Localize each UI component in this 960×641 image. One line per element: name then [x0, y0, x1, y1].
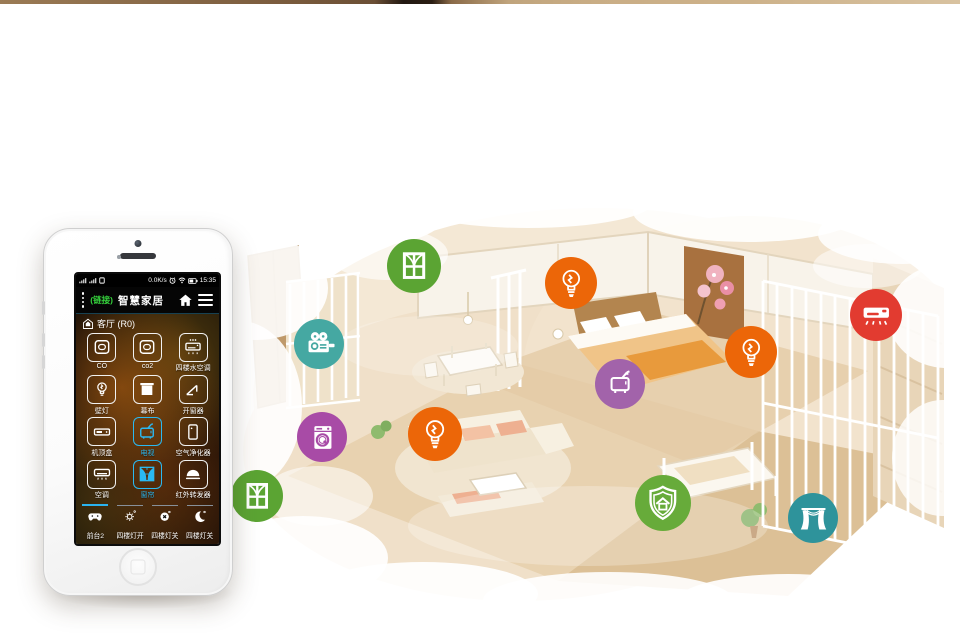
overlay-bulb-icon[interactable] [725, 326, 777, 378]
front-camera [135, 240, 142, 247]
dome-icon [179, 460, 208, 489]
device-label: 空气净化器 [176, 448, 211, 458]
alarm-icon [169, 277, 176, 284]
battery-icon [188, 278, 198, 284]
device-tile-sensor[interactable]: co2 [125, 333, 171, 374]
device-label: 空调 [95, 490, 109, 500]
moon-icon [192, 508, 208, 529]
overflow-menu-icon[interactable] [82, 292, 84, 307]
scene-button-sun[interactable]: 四楼灯开 [113, 505, 148, 540]
ac-icon [87, 460, 116, 489]
page: 0.0K/s 15:35 (链接) 智慧家居 客厅 (R0) COco [0, 0, 960, 641]
volume-down-button[interactable] [42, 355, 45, 369]
device-tile-ac[interactable]: 空调 [79, 460, 125, 501]
scene-label: 四楼灯关 [151, 530, 178, 540]
room-home-icon [82, 318, 94, 330]
bulb-icon [87, 375, 116, 404]
sim-icon [99, 277, 105, 284]
device-label: 四楼水空调 [176, 363, 211, 373]
overlay-shield-home-icon[interactable] [635, 475, 691, 531]
cropped-banner-strip [0, 0, 960, 4]
overlay-curtain-icon[interactable] [788, 493, 838, 543]
device-tile-sensor[interactable]: CO [79, 333, 125, 374]
sun-icon [122, 508, 138, 529]
smartphone: 0.0K/s 15:35 (链接) 智慧家居 客厅 (R0) COco [43, 228, 233, 596]
overlay-window-icon[interactable] [387, 239, 441, 293]
room-selector[interactable]: 客厅 (R0) [76, 314, 219, 331]
screen-icon [133, 375, 162, 404]
device-label: 机顶盒 [91, 448, 112, 458]
scene-label: 前台2 [87, 530, 104, 540]
sensor-icon [87, 333, 116, 362]
phone-screen: 0.0K/s 15:35 (链接) 智慧家居 客厅 (R0) COco [76, 274, 219, 544]
tv-icon [133, 417, 162, 446]
scene-indicator [152, 505, 178, 506]
device-label: 红外转发器 [176, 490, 211, 500]
settop-icon [87, 417, 116, 446]
clock-time: 15:35 [200, 277, 216, 284]
scene-button-gamepad[interactable]: 前台2 [78, 504, 113, 540]
home-button[interactable] [119, 548, 157, 586]
mute-switch[interactable] [42, 301, 45, 315]
wifi-icon [178, 277, 186, 284]
status-bar: 0.0K/s 15:35 [76, 274, 219, 287]
device-tile-dome[interactable]: 红外转发器 [170, 460, 216, 501]
app-header: (链接) 智慧家居 [76, 287, 219, 314]
x-circle-icon [157, 508, 173, 529]
device-label: 壁灯 [95, 406, 109, 416]
volume-up-button[interactable] [42, 333, 45, 347]
device-label: 窗帘 [140, 490, 154, 500]
device-tile-purifier[interactable]: 空气净化器 [170, 417, 216, 458]
scene-label: 四楼灯开 [117, 530, 144, 540]
connection-status: (链接) [90, 294, 113, 306]
device-label: co2 [142, 363, 153, 370]
scene-button-moon[interactable]: 四楼灯关 [182, 505, 217, 540]
network-speed: 0.0K/s [148, 277, 166, 284]
device-label: 幕布 [140, 406, 154, 416]
overlay-bulb-icon[interactable] [408, 407, 462, 461]
device-label: CO [97, 363, 108, 370]
app-title: 智慧家居 [118, 293, 164, 308]
device-label: 开窗器 [183, 406, 204, 416]
device-label: 电视 [140, 448, 154, 458]
scene-button-x-circle[interactable]: 四楼灯关 [148, 505, 183, 540]
sensor-dot [117, 255, 121, 259]
scene-label: 四楼灯关 [186, 530, 213, 540]
house-render [228, 196, 944, 606]
earpiece-speaker [120, 253, 156, 259]
overlay-ac-icon[interactable] [850, 289, 902, 341]
window-opener-icon [179, 375, 208, 404]
scene-row: 前台2四楼灯开四楼灯关四楼灯关 [76, 502, 219, 544]
overlay-tv-icon[interactable] [595, 359, 645, 409]
device-tile-tv[interactable]: 电视 [125, 417, 171, 458]
curtain-icon [133, 460, 162, 489]
overlay-washer-icon[interactable] [297, 412, 347, 462]
signal2-icon [89, 277, 97, 284]
hamburger-menu-icon[interactable] [198, 294, 213, 306]
device-tile-screen[interactable]: 幕布 [125, 375, 171, 416]
overlay-movie-camera-icon[interactable] [294, 319, 344, 369]
device-grid: COco2四楼水空调壁灯幕布开窗器机顶盒电视空气净化器空调窗帘红外转发器 [76, 331, 219, 502]
device-tile-ac-top[interactable]: 四楼水空调 [170, 333, 216, 374]
scene-indicator [117, 505, 143, 506]
room-label: 客厅 (R0) [97, 317, 135, 330]
gamepad-icon [87, 508, 103, 529]
ac-top-icon [179, 333, 208, 362]
device-tile-curtain[interactable]: 窗帘 [125, 460, 171, 501]
device-tile-settop[interactable]: 机顶盒 [79, 417, 125, 458]
device-tile-window-opener[interactable]: 开窗器 [170, 375, 216, 416]
home-icon[interactable] [178, 294, 193, 307]
overlay-window-icon[interactable] [231, 470, 283, 522]
overlay-bulb-icon[interactable] [545, 257, 597, 309]
purifier-icon [179, 417, 208, 446]
device-tile-bulb[interactable]: 壁灯 [79, 375, 125, 416]
scene-indicator [187, 505, 213, 506]
scene-indicator [82, 504, 108, 506]
sensor-icon [133, 333, 162, 362]
signal-icon [79, 277, 87, 284]
